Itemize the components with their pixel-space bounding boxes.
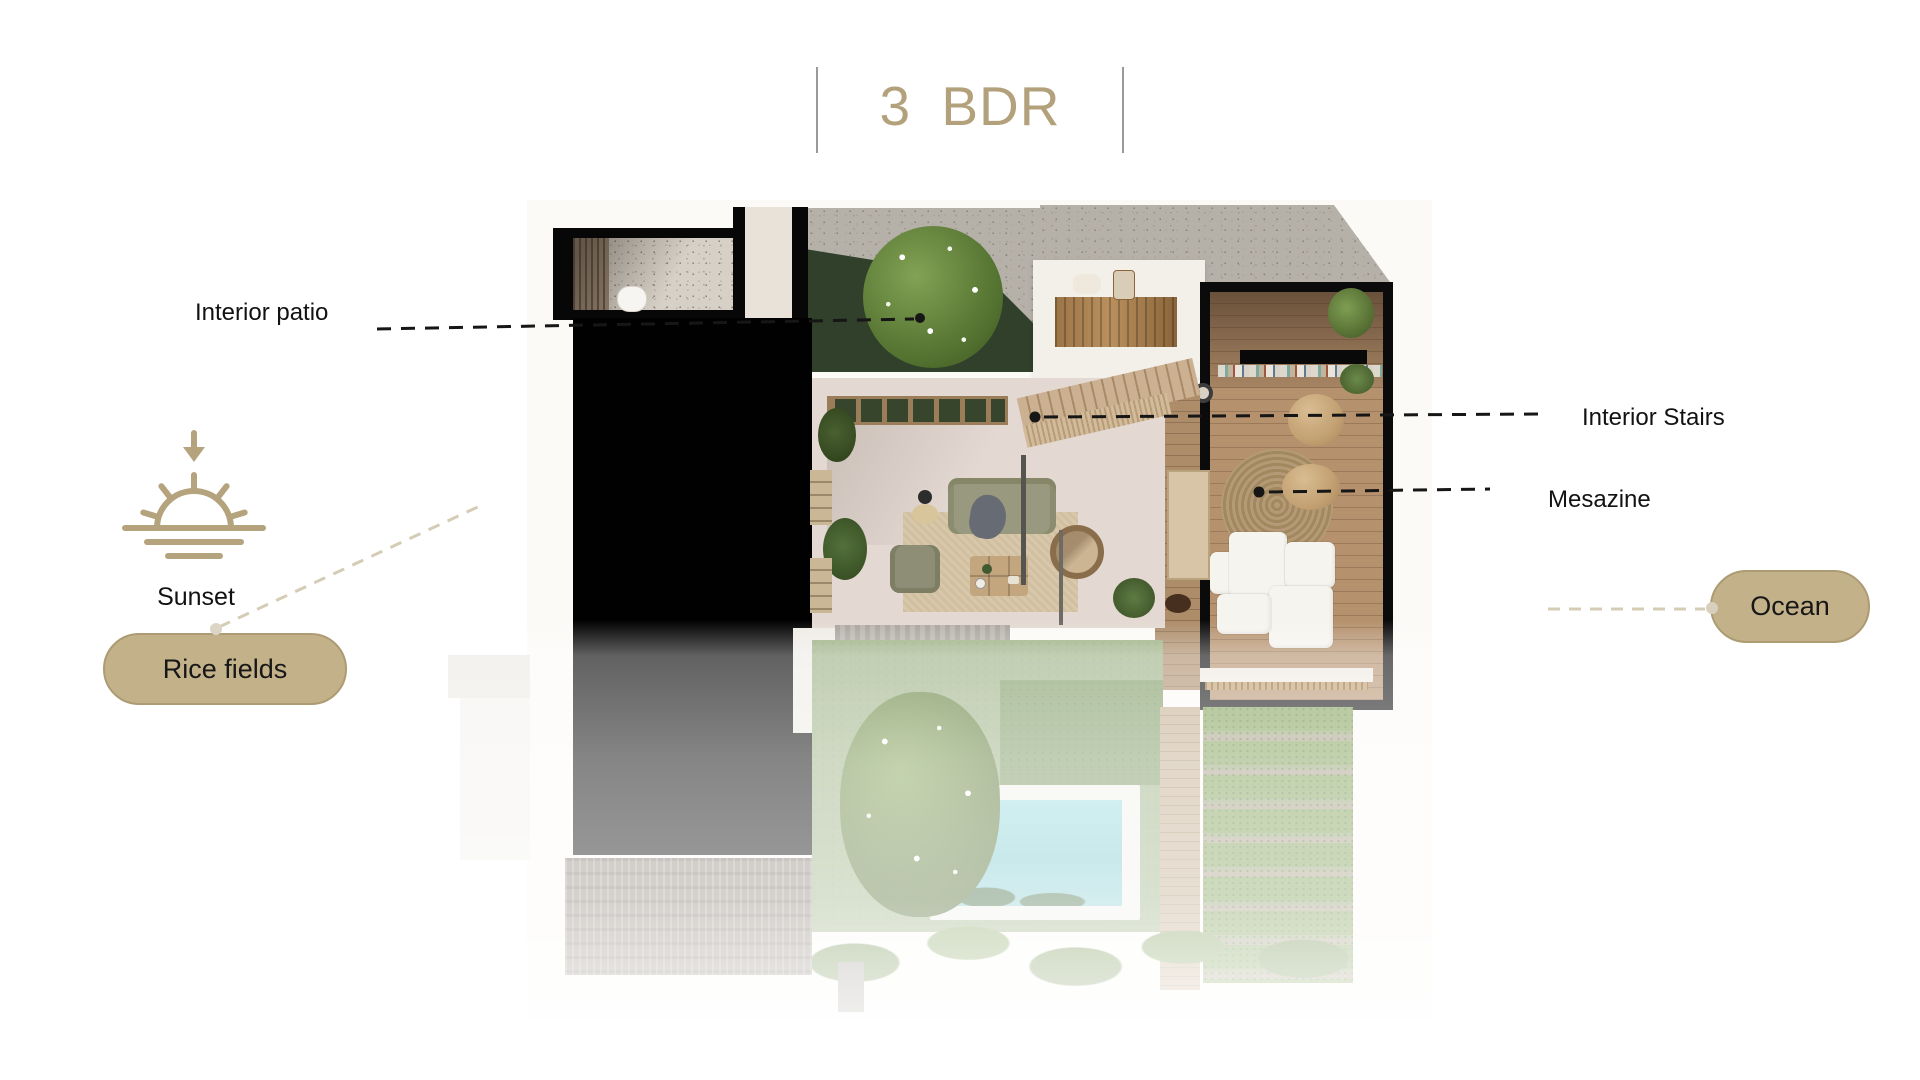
railing-post (1059, 530, 1063, 625)
thatch-roof (565, 858, 812, 975)
side-roof (448, 655, 530, 698)
page-title: 3 BDR (817, 74, 1123, 138)
garden-frangipani-tree (840, 692, 1000, 917)
bean-bag (1288, 394, 1344, 446)
pill-ocean: Ocean (1710, 570, 1870, 643)
wall-niche (810, 470, 832, 525)
balcony-ledge (1200, 668, 1373, 682)
corridor (745, 207, 792, 318)
side-terrace (460, 698, 530, 860)
frangipani-tree (863, 226, 1003, 368)
pill-rice-fields-label: Rice fields (163, 654, 288, 685)
black-roof-mass (573, 318, 812, 855)
lamp-shade (912, 504, 938, 524)
entry-step (838, 962, 864, 1012)
label-interior-patio: Interior patio (195, 299, 328, 327)
label-sunset: Sunset (114, 583, 278, 612)
table-book (1008, 576, 1019, 584)
mezzanine-area (1200, 282, 1393, 710)
fiddle-leaf-plant (818, 408, 856, 462)
railing-post (1021, 455, 1026, 585)
label-mesazine: Mesazine (1548, 486, 1651, 514)
bathroom-sink (1073, 274, 1101, 294)
palm-plant (1340, 364, 1374, 394)
pill-ocean-label: Ocean (1750, 591, 1830, 622)
potted-plant (1328, 288, 1374, 338)
white-sofa-module (1217, 594, 1271, 634)
mezzanine-wall (1240, 350, 1367, 364)
title-divider-right (1122, 67, 1124, 153)
wall-segment (733, 207, 745, 320)
pill-rice-fields: Rice fields (103, 633, 347, 705)
room-shadow (573, 238, 733, 310)
bamboo-railing (1205, 682, 1368, 690)
wood-desk (1167, 470, 1210, 580)
label-interior-stairs: Interior Stairs (1582, 404, 1725, 432)
coffee-table (970, 556, 1028, 596)
white-sofa-module (1285, 542, 1335, 588)
bathtub (617, 286, 647, 312)
bean-bag (1282, 464, 1340, 510)
wall-niche (810, 558, 832, 613)
dark-bowl (1165, 594, 1191, 613)
pendant-light (918, 490, 932, 504)
pergola-slats (827, 396, 1008, 425)
interior-patio-area (808, 208, 1040, 372)
sunset-icon (114, 420, 274, 570)
arrow-down-icon (183, 433, 205, 462)
bathroom-skylight (1055, 297, 1177, 347)
floor-plan-illustration (527, 200, 1432, 1018)
hedge (1000, 680, 1163, 785)
white-sofa-module (1269, 586, 1333, 648)
palm-plant (1113, 578, 1155, 618)
table-dish (975, 578, 986, 589)
table-plant (982, 564, 992, 574)
armchair (890, 545, 940, 593)
slide-canvas: 3 BDR (0, 0, 1920, 1080)
bathroom-vanity (1113, 270, 1135, 300)
